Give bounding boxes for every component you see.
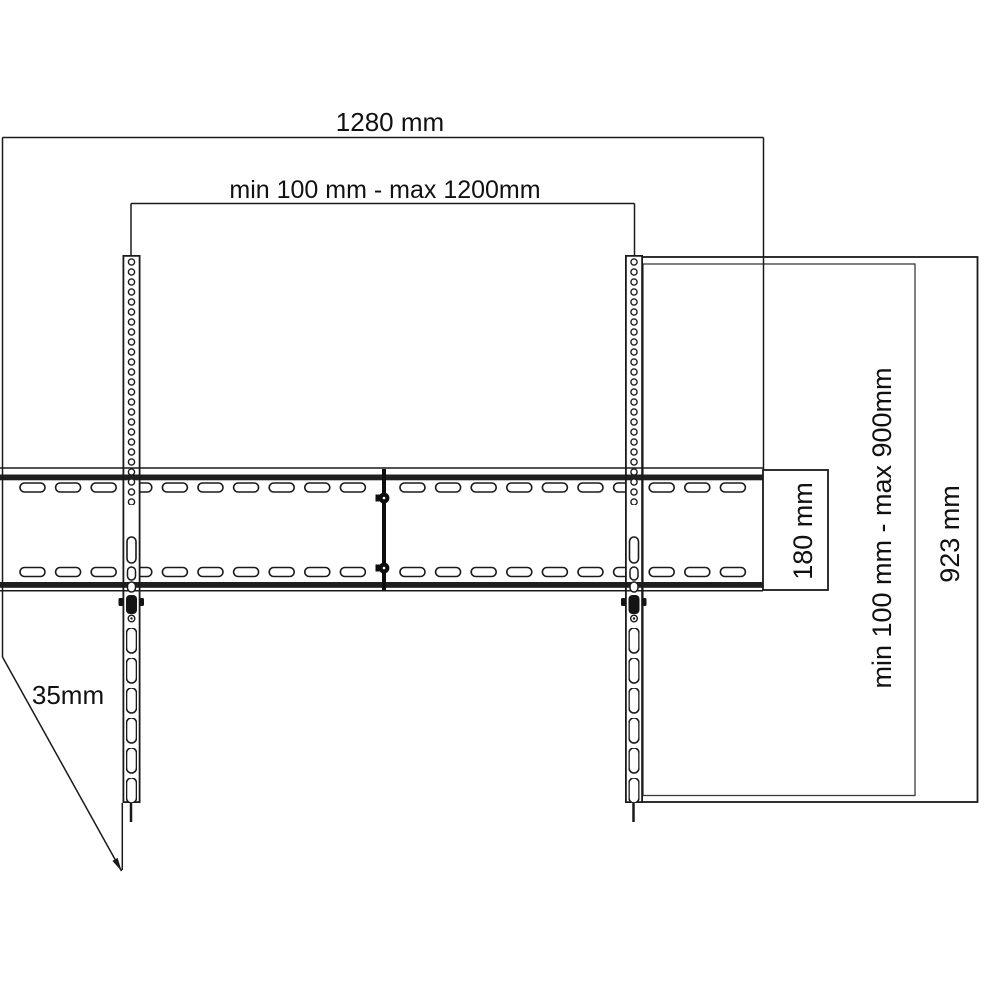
dim-label-profile-depth: 35mm [32,680,104,710]
dim-label-overall-width: 1280 mm [336,107,444,137]
dim-label-bar-height: 180 mm [788,482,818,580]
bar-slot-row [400,568,745,577]
bar-slot-row [400,483,745,492]
vertical-rail-right [621,255,647,822]
bar-slot-row [20,483,365,492]
wall-mount-dimension-diagram: 1280 mm min 100 mm - max 1200mm 35mm 180… [0,0,986,986]
leader-arrowhead [112,858,121,872]
bar-slot-row [20,568,365,577]
dim-label-mount-height-range: min 100 mm - max 900mm [867,367,897,688]
dim-label-mount-width-range: min 100 mm - max 1200mm [229,176,540,204]
vertical-rail-left [119,255,145,822]
diagram-svg: 1280 mm min 100 mm - max 1200mm 35mm 180… [0,0,986,986]
dim-label-overall-height: 923 mm [935,485,965,583]
bar-centre-junction [376,469,390,590]
